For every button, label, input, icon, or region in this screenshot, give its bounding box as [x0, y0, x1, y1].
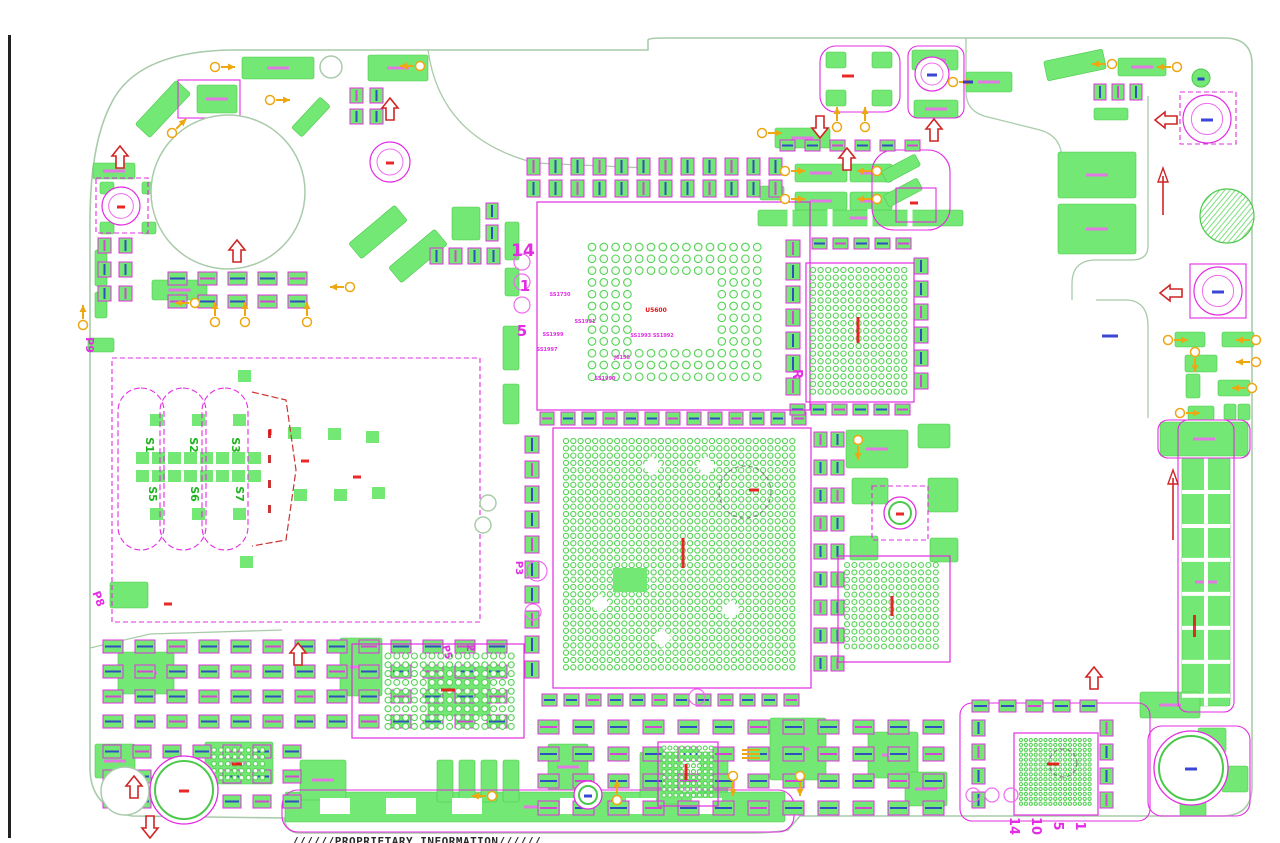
- bga-ball: [246, 748, 251, 753]
- bga-ball: [607, 555, 612, 560]
- bga-ball: [848, 343, 853, 348]
- bga-ball: [1068, 783, 1071, 786]
- bga-ball: [867, 607, 872, 612]
- ref-des-smudge: [1086, 174, 1108, 177]
- bga-ball: [688, 577, 693, 582]
- bga-ball: [600, 267, 608, 275]
- bga-ball: [746, 497, 751, 502]
- bga-ball: [706, 373, 714, 381]
- sim-contact-pad: [152, 452, 165, 464]
- component-pad: [930, 538, 958, 562]
- bga-ball: [571, 665, 576, 670]
- bga-ball: [563, 548, 568, 553]
- bga-ball: [911, 629, 916, 634]
- ref-des-smudge: [792, 334, 794, 347]
- bga-ball: [882, 600, 887, 605]
- bga-ball: [753, 657, 758, 662]
- bga-ball: [680, 438, 685, 443]
- bga-ball: [753, 361, 761, 369]
- test-point-arrow-head: [834, 107, 841, 114]
- ref-des-smudge: [810, 172, 832, 175]
- bga-ball: [864, 321, 869, 326]
- bga-ball: [695, 497, 700, 502]
- bga-ball: [674, 758, 678, 762]
- bga-ball: [578, 621, 583, 626]
- bga-ball: [624, 361, 632, 369]
- ref-des-smudge: [599, 160, 601, 173]
- bga-ball: [919, 592, 924, 597]
- bga-ball: [563, 475, 568, 480]
- ref-des-smudge: [1117, 86, 1119, 98]
- bga-ball: [768, 541, 773, 546]
- bga-ball: [563, 504, 568, 509]
- bga-ball: [622, 541, 627, 546]
- bga-ball: [499, 679, 505, 685]
- ref-des-smudge: [269, 429, 272, 435]
- bga-ball: [636, 614, 641, 619]
- bga-ball: [1039, 797, 1042, 800]
- ref-des-smudge: [820, 434, 822, 445]
- ref-des-smudge: [1193, 438, 1215, 441]
- bga-ball: [491, 653, 497, 659]
- ref-des-smudge: [1082, 705, 1095, 707]
- bga-ball: [563, 541, 568, 546]
- bga-ball: [666, 475, 671, 480]
- ref-des-smudge: [105, 671, 121, 673]
- bga-ball: [571, 446, 576, 451]
- bga-ball: [826, 374, 831, 379]
- bga-ball: [624, 243, 632, 251]
- bga-ball: [680, 764, 684, 768]
- bga-ball: [385, 706, 391, 712]
- bga-ball: [1029, 787, 1032, 790]
- ref-des-smudge: [820, 574, 822, 585]
- bga-ball: [624, 290, 632, 298]
- bga-ball: [889, 629, 894, 634]
- test-point-circle: [168, 129, 177, 138]
- bga-ball: [1073, 778, 1076, 781]
- ref-des-smudge: [752, 418, 762, 420]
- bga-ball: [782, 533, 787, 538]
- bga-ball: [919, 600, 924, 605]
- bga-ball: [703, 746, 707, 750]
- bga-ball: [859, 563, 864, 568]
- test-point: [833, 107, 842, 132]
- bga-ball: [578, 438, 583, 443]
- test-point-circle: [781, 195, 790, 204]
- bga-ball: [212, 755, 217, 760]
- bga-ball: [260, 775, 265, 780]
- ref-des-smudge: [137, 671, 153, 673]
- bga-ball: [886, 267, 891, 272]
- bga-ball: [629, 511, 634, 516]
- ref-des-smudge: [610, 753, 627, 755]
- bga-ball: [1068, 778, 1071, 781]
- bga-ball: [578, 511, 583, 516]
- bga-ball: [508, 662, 514, 668]
- bga-ball: [673, 592, 678, 597]
- bga-ball: [253, 775, 258, 780]
- bga-ball: [1078, 792, 1081, 795]
- bga-ball: [636, 541, 641, 546]
- bga-ball: [636, 665, 641, 670]
- bga-ball: [833, 381, 838, 386]
- ref-des-smudge: [645, 753, 662, 755]
- bga-ball: [826, 275, 831, 280]
- bga-ball: [651, 519, 656, 524]
- bga-ball: [919, 577, 924, 582]
- bga-ball: [761, 628, 766, 633]
- bga-ball: [1034, 797, 1037, 800]
- bga-ball: [571, 628, 576, 633]
- bga-ball: [911, 577, 916, 582]
- bga-ball: [746, 446, 751, 451]
- ref-des-smudge: [361, 721, 377, 723]
- bga-ball: [447, 715, 453, 721]
- bga-ball: [607, 636, 612, 641]
- bga-ball: [845, 629, 850, 634]
- bga-ball: [703, 793, 707, 797]
- bga-ball: [680, 650, 685, 655]
- bga-ball: [818, 305, 823, 310]
- ref-des-smudge: [1055, 705, 1068, 707]
- component-pad: [110, 582, 148, 608]
- bga-ball: [874, 629, 879, 634]
- bga-ball: [593, 504, 598, 509]
- bga-ball: [859, 622, 864, 627]
- bga-ball: [1083, 802, 1086, 805]
- ref-des-smudge: [1131, 66, 1153, 69]
- bga-ball: [673, 504, 678, 509]
- bga-ball: [680, 468, 685, 473]
- bga-ball: [651, 497, 656, 502]
- bga-ball: [680, 592, 685, 597]
- bga-ball: [739, 643, 744, 648]
- bga-ball: [753, 636, 758, 641]
- bga-ball: [874, 600, 879, 605]
- bga-ball: [585, 643, 590, 648]
- bga-ball: [403, 715, 409, 721]
- bga-ball: [702, 577, 707, 582]
- bga-ball: [1073, 802, 1076, 805]
- bga-ball: [739, 614, 744, 619]
- bga-ball: [709, 636, 714, 641]
- bga-ball: [886, 283, 891, 288]
- bga-ball: [845, 585, 850, 590]
- bga-ball: [1019, 748, 1022, 751]
- bga-ball: [629, 533, 634, 538]
- bga-ball: [508, 723, 514, 729]
- bga-ball: [1064, 743, 1067, 746]
- bga-ball: [636, 628, 641, 633]
- bga-ball: [688, 614, 693, 619]
- bga-ball: [680, 787, 684, 791]
- bga-ball: [1068, 787, 1071, 790]
- bga-ball: [680, 770, 684, 774]
- bga-ball: [629, 563, 634, 568]
- bga-ball: [919, 585, 924, 590]
- bga-ball: [571, 636, 576, 641]
- bga-ball: [761, 577, 766, 582]
- bga-ball: [563, 438, 568, 443]
- bga-ball: [585, 438, 590, 443]
- ref-des-smudge: [206, 98, 228, 101]
- bga-ball: [768, 606, 773, 611]
- bga-ball: [874, 577, 879, 582]
- bga-ball: [1024, 787, 1027, 790]
- bga-ball: [709, 621, 714, 626]
- bga-ball: [659, 267, 667, 275]
- component-pad: [826, 52, 846, 68]
- bga-ball: [856, 359, 861, 364]
- bga-ball: [578, 468, 583, 473]
- bga-ball: [600, 468, 605, 473]
- bga-ball: [1019, 763, 1022, 766]
- bga-ball: [1054, 783, 1057, 786]
- bga-ball: [882, 577, 887, 582]
- bga-ball: [871, 313, 876, 318]
- ref-des-smudge: [290, 301, 305, 303]
- ref-des-smudge: [810, 200, 832, 203]
- bga-ball: [563, 490, 568, 495]
- ref-des-smudge: [920, 306, 922, 318]
- bga-ball: [894, 267, 899, 272]
- bga-ball: [1039, 783, 1042, 786]
- orientation-arrow: [142, 816, 158, 838]
- bga-ball: [1019, 778, 1022, 781]
- bga-ball: [746, 468, 751, 473]
- bga-ball: [607, 453, 612, 458]
- bga-ball: [571, 453, 576, 458]
- bga-ball: [768, 636, 773, 641]
- test-point-circle: [211, 318, 220, 327]
- bga-ball: [775, 526, 780, 531]
- bga-ball: [896, 629, 901, 634]
- sim-contact-pad: [232, 470, 245, 482]
- bga-ball: [651, 599, 656, 604]
- bga-ball: [673, 636, 678, 641]
- bga-ball: [904, 592, 909, 597]
- bga-ball: [718, 302, 726, 310]
- bga-ball: [666, 511, 671, 516]
- bga-ball: [859, 614, 864, 619]
- bga-ball: [731, 468, 736, 473]
- bga-ball: [902, 267, 907, 272]
- bga-ball: [775, 453, 780, 458]
- ref-des-smudge: [542, 418, 552, 420]
- bga-ball: [647, 349, 655, 357]
- bga-ball: [607, 577, 612, 582]
- bga-ball: [874, 607, 879, 612]
- test-point-circle: [758, 129, 767, 138]
- bga-ball: [394, 662, 400, 668]
- bga-ball: [585, 548, 590, 553]
- bga-ball: [1044, 773, 1047, 776]
- bga-ball: [622, 482, 627, 487]
- bga-ball: [651, 526, 656, 531]
- bga-ball: [739, 468, 744, 473]
- bga-ball: [411, 662, 417, 668]
- ref-des-smudge: [792, 137, 814, 140]
- bga-ball: [709, 519, 714, 524]
- bga-ball: [695, 548, 700, 553]
- bga-ball: [600, 614, 605, 619]
- bga-ball: [848, 321, 853, 326]
- bga-ball: [1024, 768, 1027, 771]
- bga-ball: [746, 533, 751, 538]
- bga-ball: [385, 671, 391, 677]
- bga-ball: [742, 314, 750, 322]
- sim-contact-pad: [372, 487, 385, 499]
- bga-ball: [886, 275, 891, 280]
- bga-ball: [1024, 773, 1027, 776]
- ref-des-smudge: [169, 696, 185, 698]
- ref-des-smudge: [876, 409, 887, 411]
- bga-ball: [724, 548, 729, 553]
- ref-label: SS1990: [595, 376, 616, 382]
- bga-ball: [600, 533, 605, 538]
- bga-ball: [871, 343, 876, 348]
- bga-ball: [651, 555, 656, 560]
- bga-ball: [683, 361, 691, 369]
- bga-ball: [864, 313, 869, 318]
- bga-ball: [753, 526, 758, 531]
- bga-ball: [724, 584, 729, 589]
- bga-ball: [673, 519, 678, 524]
- bga-ball: [867, 570, 872, 575]
- test-point-circle: [1252, 336, 1261, 345]
- ref-des-smudge: [531, 463, 533, 476]
- bga-ball: [742, 361, 750, 369]
- bga-ball: [702, 548, 707, 553]
- bga-ball: [864, 343, 869, 348]
- bga-ball: [651, 475, 656, 480]
- bga-ball: [718, 243, 726, 251]
- bga-ball: [790, 533, 795, 538]
- bga-ball: [1078, 797, 1081, 800]
- ref-des-smudge: [230, 301, 245, 303]
- bga-ball: [753, 650, 758, 655]
- ref-des-smudge: [792, 311, 794, 324]
- component-pad: [505, 268, 519, 296]
- bga-ball: [933, 563, 938, 568]
- bga-ball: [680, 490, 685, 495]
- bga-ball: [593, 628, 598, 633]
- bga-ball: [782, 460, 787, 465]
- bga-ball: [703, 776, 707, 780]
- bga-ball: [761, 584, 766, 589]
- bga-ball: [622, 636, 627, 641]
- bga-ball: [761, 614, 766, 619]
- bga-ball: [739, 636, 744, 641]
- bga-ball: [902, 374, 907, 379]
- bga-ball: [1064, 797, 1067, 800]
- bga-ball: [593, 592, 598, 597]
- bga-ball: [826, 351, 831, 356]
- bga-ball: [717, 584, 722, 589]
- ref-des-smudge: [882, 145, 893, 147]
- bga-ball: [1064, 787, 1067, 790]
- bga-ball: [859, 600, 864, 605]
- bga-ball: [896, 592, 901, 597]
- ref-des-smudge: [285, 776, 299, 778]
- bga-ball: [709, 776, 713, 780]
- bga-ball: [911, 614, 916, 619]
- bga-ball: [717, 628, 722, 633]
- bga-ball: [818, 298, 823, 303]
- bga-ball: [896, 577, 901, 582]
- bga-ball: [578, 555, 583, 560]
- bga-ball: [926, 607, 931, 612]
- bga-ball: [871, 290, 876, 295]
- bga-ball: [571, 570, 576, 575]
- bga-ball: [826, 313, 831, 318]
- bga-ball: [473, 723, 479, 729]
- bga-ball: [686, 752, 690, 756]
- bga-ball: [385, 697, 391, 703]
- ref-des-smudge: [285, 801, 299, 803]
- ref-label: S2: [187, 437, 200, 453]
- bga-ball: [253, 762, 258, 767]
- bga-ball: [896, 644, 901, 649]
- bga-ball: [695, 592, 700, 597]
- ref-des-smudge: [125, 240, 127, 251]
- bga-ball: [588, 326, 596, 334]
- bga-ball: [622, 628, 627, 633]
- bga-ball: [622, 533, 627, 538]
- bga-ball: [622, 438, 627, 443]
- bga-ball: [1064, 773, 1067, 776]
- bga-ball: [724, 650, 729, 655]
- ref-des-smudge: [621, 160, 623, 173]
- bga-ball: [692, 781, 696, 785]
- bga-ball: [746, 453, 751, 458]
- bga-ball: [593, 497, 598, 502]
- bga-ball: [1034, 773, 1037, 776]
- bga-ball: [607, 657, 612, 662]
- bga-ball: [761, 460, 766, 465]
- bga-ball: [724, 533, 729, 538]
- bga-ball: [782, 665, 787, 670]
- bga-ball: [695, 584, 700, 589]
- ref-des-smudge: [782, 145, 793, 147]
- bga-ball: [692, 793, 696, 797]
- bga-ball: [212, 762, 217, 767]
- bga-ball: [1073, 797, 1076, 800]
- ref-des-smudge: [441, 689, 455, 692]
- bga-ball: [717, 526, 722, 531]
- bga-ball: [864, 275, 869, 280]
- bga-ball: [673, 563, 678, 568]
- bga-ball: [508, 679, 514, 685]
- bga-ball: [1034, 778, 1037, 781]
- bga-ball: [731, 438, 736, 443]
- bga-ball: [886, 313, 891, 318]
- bga-ball: [658, 497, 663, 502]
- test-point-circle: [781, 167, 790, 176]
- test-point-arrow-head: [330, 284, 337, 291]
- bga-ball: [1068, 792, 1071, 795]
- ref-des-smudge: [233, 646, 249, 648]
- bga-ball: [588, 279, 596, 287]
- bga-ball: [768, 490, 773, 495]
- bga-ball: [867, 577, 872, 582]
- bga-ball: [671, 373, 679, 381]
- bga-ball: [739, 453, 744, 458]
- ref-des-smudge: [356, 111, 358, 122]
- bga-ball: [1029, 778, 1032, 781]
- bga-ball: [578, 584, 583, 589]
